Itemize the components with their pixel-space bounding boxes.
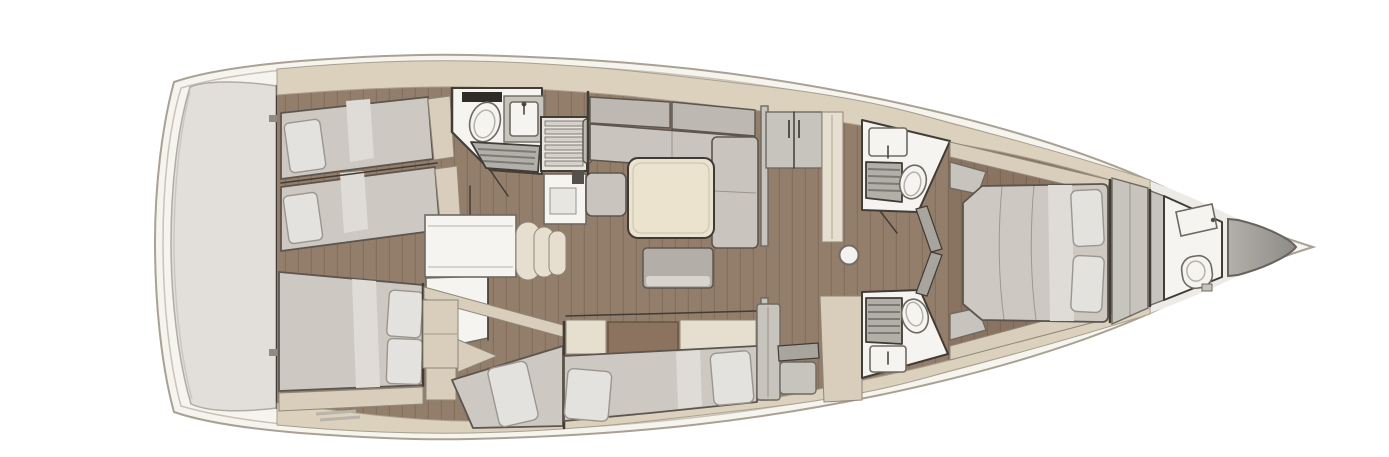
sofa-backrest — [590, 97, 670, 128]
pillow — [710, 350, 754, 405]
bow-section — [1148, 190, 1296, 306]
stair-step — [545, 153, 583, 158]
floor-plan-svg — [0, 0, 1389, 457]
pillow — [1071, 255, 1105, 313]
nav-side-panel — [820, 296, 862, 402]
ottoman-front — [646, 276, 710, 286]
stair-step — [545, 129, 583, 134]
nav-desk-shelf — [778, 343, 819, 361]
sideboard — [566, 320, 606, 354]
pillow — [1071, 189, 1105, 247]
counter-fitting — [572, 170, 584, 184]
pillow — [564, 368, 612, 422]
transom-platform — [171, 82, 278, 411]
grate-slat — [868, 169, 900, 170]
shower-grate — [866, 162, 902, 202]
counter-sink — [550, 188, 576, 214]
toilet-base — [1202, 284, 1212, 291]
pillow — [386, 338, 423, 384]
stair-step — [545, 145, 583, 150]
stair-step — [545, 161, 583, 166]
pillow — [283, 192, 323, 244]
blanket-fold — [352, 279, 380, 388]
companionway — [541, 117, 587, 224]
faucet — [1211, 218, 1215, 222]
blanket-fold — [340, 171, 368, 233]
stair-step — [545, 137, 583, 142]
curved-seat-panel — [549, 231, 566, 275]
pillow — [386, 290, 423, 338]
side-seat — [586, 173, 626, 216]
shelf-dark — [462, 92, 502, 102]
salon-table — [628, 158, 714, 238]
nav-seat — [780, 362, 816, 394]
grate-slat — [868, 183, 900, 184]
transom-panel — [171, 82, 277, 411]
sheet-fold — [1048, 185, 1074, 321]
transom-hinge — [269, 349, 278, 356]
mast-post — [840, 246, 859, 265]
chart-desk — [425, 215, 516, 277]
blanket-fold — [676, 350, 702, 409]
grate-slat — [868, 176, 900, 177]
stair-step — [545, 121, 583, 126]
sail-locker — [1228, 219, 1296, 276]
yacht-floor-plan — [0, 0, 1389, 457]
blanket-fold — [346, 99, 374, 162]
grate-slat — [868, 190, 900, 191]
transom-hinge — [269, 115, 278, 122]
pillow — [284, 119, 327, 174]
